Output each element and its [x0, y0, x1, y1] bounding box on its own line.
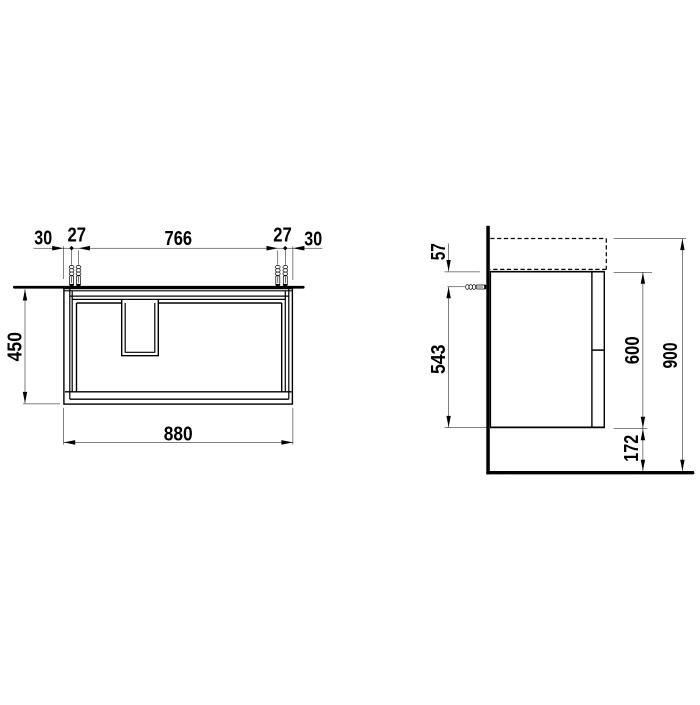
svg-text:27: 27: [273, 224, 292, 246]
svg-text:880: 880: [164, 423, 193, 445]
svg-text:30: 30: [34, 227, 52, 249]
svg-text:57: 57: [428, 243, 450, 260]
svg-text:450: 450: [5, 332, 27, 361]
svg-text:30: 30: [304, 229, 322, 251]
svg-text:172: 172: [621, 435, 643, 462]
svg-text:543: 543: [428, 345, 450, 375]
svg-text:600: 600: [622, 336, 644, 364]
svg-text:900: 900: [660, 343, 682, 369]
svg-text:27: 27: [67, 224, 86, 246]
svg-text:766: 766: [165, 228, 193, 250]
